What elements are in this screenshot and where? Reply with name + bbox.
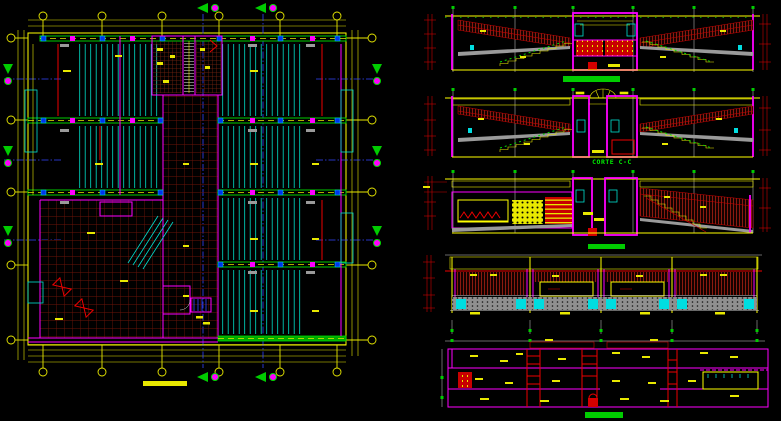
- wall-mid-3: [218, 262, 346, 267]
- section-4-title-bar: [585, 412, 623, 418]
- right-wing: [640, 14, 753, 70]
- section-4[interactable]: [441, 339, 769, 418]
- dim-stack-left: [424, 96, 436, 156]
- core-towers: [573, 178, 637, 236]
- roof-strips: [530, 339, 668, 348]
- stage-core: [573, 13, 637, 70]
- toilet-core: [152, 36, 222, 95]
- section-2-title: CORTE C-C: [592, 158, 632, 166]
- frieze-band: [450, 257, 758, 269]
- dim-stack-right: [759, 14, 771, 70]
- right-wing: [640, 188, 753, 233]
- grid-bubbles-top: [39, 12, 341, 36]
- plan-title-bar: [143, 381, 187, 386]
- grid-stubs: [451, 320, 759, 334]
- wall-top: [40, 36, 346, 41]
- grid-ticks: [451, 339, 759, 342]
- grid-bubbles-right: [346, 34, 376, 344]
- grid-bubbles-bottom: [39, 345, 341, 376]
- annotations: [470, 352, 739, 402]
- cad-sheet[interactable]: CORTE C-C: [0, 0, 781, 421]
- elevation-1[interactable]: [423, 255, 762, 334]
- section-1[interactable]: [424, 6, 771, 82]
- core-towers: [573, 96, 637, 157]
- section-3[interactable]: [423, 170, 771, 249]
- hydrant: [588, 394, 598, 407]
- left-wing: [452, 14, 572, 70]
- section-2[interactable]: CORTE C-C: [424, 88, 771, 166]
- stair-detail: [700, 370, 768, 389]
- dim-stack-right: [759, 178, 771, 232]
- floor-plan[interactable]: [3, 3, 382, 386]
- drawing-canvas: CORTE C-C: [0, 0, 781, 421]
- left-hall: [452, 192, 572, 232]
- section-body: [441, 349, 769, 407]
- dim-stack-left: [423, 176, 447, 230]
- dim-stack-left: [423, 255, 435, 312]
- section-3-title-bar: [588, 244, 625, 249]
- section-1-title-bar: [563, 76, 620, 82]
- dim-stack-left: [424, 14, 436, 70]
- dim-stack-right: [759, 96, 771, 156]
